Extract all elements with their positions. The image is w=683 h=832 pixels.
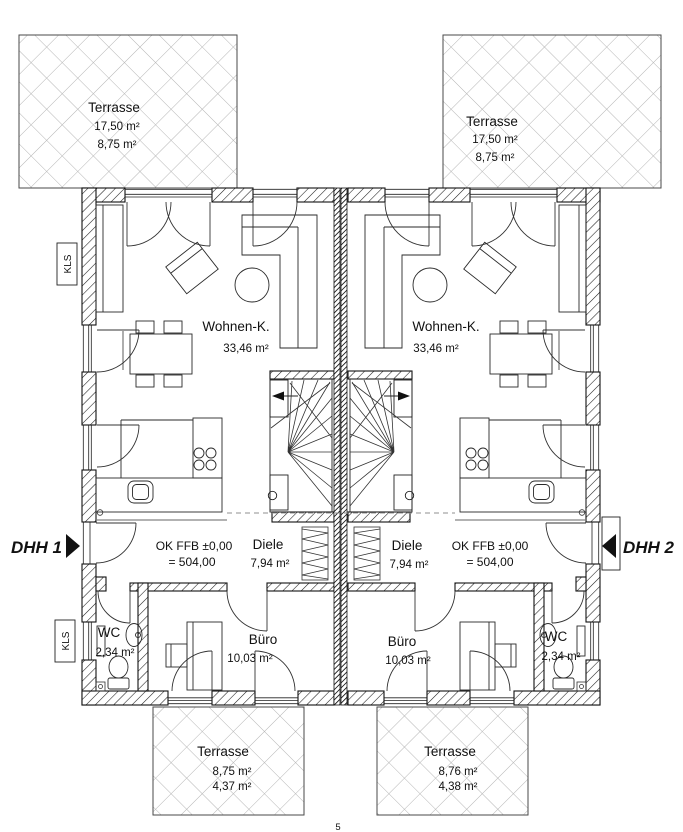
- window-kitchen: [83, 425, 139, 470]
- terrace-door-top-single: [253, 189, 297, 246]
- unit2-level-line1: OK FFB ±0,00: [452, 539, 529, 553]
- terrace-bottom-left-area1: 8,75 m²: [213, 766, 252, 778]
- cabinet: [96, 205, 123, 312]
- unit1-wc-area: 2,34 m²: [96, 647, 135, 659]
- unit1-living-area: 33,46 m²: [223, 343, 269, 355]
- floor-plan-drawing: KLS KLS DHH 1 DHH 2 Terrasse 17,50 m² 8,…: [0, 0, 683, 832]
- entrance-door: [83, 522, 136, 564]
- unit2-interior-mirrored: [350, 189, 599, 703]
- plan-page: KLS KLS DHH 1 DHH 2 Terrasse 17,50 m² 8,…: [0, 0, 683, 832]
- unit1-hall-name: Diele: [253, 537, 284, 552]
- unit1-level-line2: = 504,00: [168, 555, 215, 569]
- terrace-top-right: [443, 35, 661, 188]
- kls-label-lower: KLS: [61, 631, 72, 650]
- unit1-interior: [83, 189, 332, 703]
- corner-drain: [96, 682, 105, 691]
- column-marker: [97, 510, 103, 516]
- page-number: 5: [335, 822, 340, 832]
- kls-label-upper: KLS: [63, 254, 74, 273]
- unit2-level-line2: = 504,00: [466, 555, 513, 569]
- window-living-1: [83, 325, 139, 372]
- unit1-hall-area: 7,94 m²: [251, 558, 290, 570]
- unit2-hall-name: Diele: [392, 538, 423, 553]
- radiator: [302, 527, 328, 580]
- terrace-bottom-left-area2: 4,37 m²: [213, 781, 252, 793]
- round-table: [235, 268, 269, 302]
- terrace-top-left-name: Terrasse: [88, 100, 140, 115]
- party-wall: [334, 188, 347, 705]
- unit1-level-line1: OK FFB ±0,00: [156, 539, 233, 553]
- unit1-office-area: 10,03 m²: [227, 653, 273, 665]
- desk: [166, 622, 222, 690]
- dhh2-label: DHH 2: [623, 538, 675, 557]
- terrace-top-right-area1: 17,50 m²: [472, 134, 518, 146]
- terrace-bottom-left-name: Terrasse: [197, 744, 249, 759]
- terrace-top-left-area2: 8,75 m²: [98, 139, 137, 151]
- kls-box-upper: KLS: [57, 243, 77, 285]
- terrace-top-right-name: Terrasse: [466, 114, 518, 129]
- unit1-office-name: Büro: [249, 632, 278, 647]
- unit2-wc-area: 2,34 m²: [542, 651, 581, 663]
- office-door: [227, 591, 267, 631]
- stair-direction-arrow: [272, 392, 284, 401]
- wc-door: [98, 591, 130, 623]
- terrace-bottom-right: [377, 707, 528, 815]
- armchair: [166, 242, 218, 293]
- staircase: [268, 379, 332, 512]
- terrace-top-right-area2: 8,75 m²: [476, 152, 515, 164]
- walls-unit2: [348, 188, 600, 705]
- kls-box-lower: KLS: [55, 620, 75, 662]
- unit2-entrance-marker: DHH 2: [602, 517, 675, 570]
- dhh1-label: DHH 1: [11, 538, 62, 557]
- terrace-top-left-area1: 17,50 m²: [94, 121, 140, 133]
- kitchen: [96, 418, 222, 512]
- terrace-bottom-right-area1: 8,76 m²: [439, 766, 478, 778]
- unit2-office-area: 10,03 m²: [385, 655, 431, 667]
- unit2-wc-name: WC: [545, 629, 568, 644]
- dhh1-arrow-icon: [66, 534, 80, 558]
- unit2-living-name: Wohnen-K.: [412, 319, 479, 334]
- terrace-door-office-1: [168, 651, 212, 704]
- terrace-bottom-left: [153, 707, 304, 815]
- unit1-living-name: Wohnen-K.: [202, 319, 269, 334]
- terrace-bottom-right-area2: 4,38 m²: [439, 781, 478, 793]
- unit2-hall-area: 7,94 m²: [390, 559, 429, 571]
- unit1-wc-name: WC: [98, 625, 121, 640]
- toilet: [108, 656, 129, 689]
- terrace-door-top-wide: [125, 189, 212, 246]
- unit2-living-area: 33,46 m²: [413, 343, 459, 355]
- terrace-bottom-right-name: Terrasse: [424, 744, 476, 759]
- unit2-office-name: Büro: [388, 634, 417, 649]
- unit1-entrance-marker: DHH 1: [11, 534, 80, 558]
- cooktop: [194, 448, 216, 470]
